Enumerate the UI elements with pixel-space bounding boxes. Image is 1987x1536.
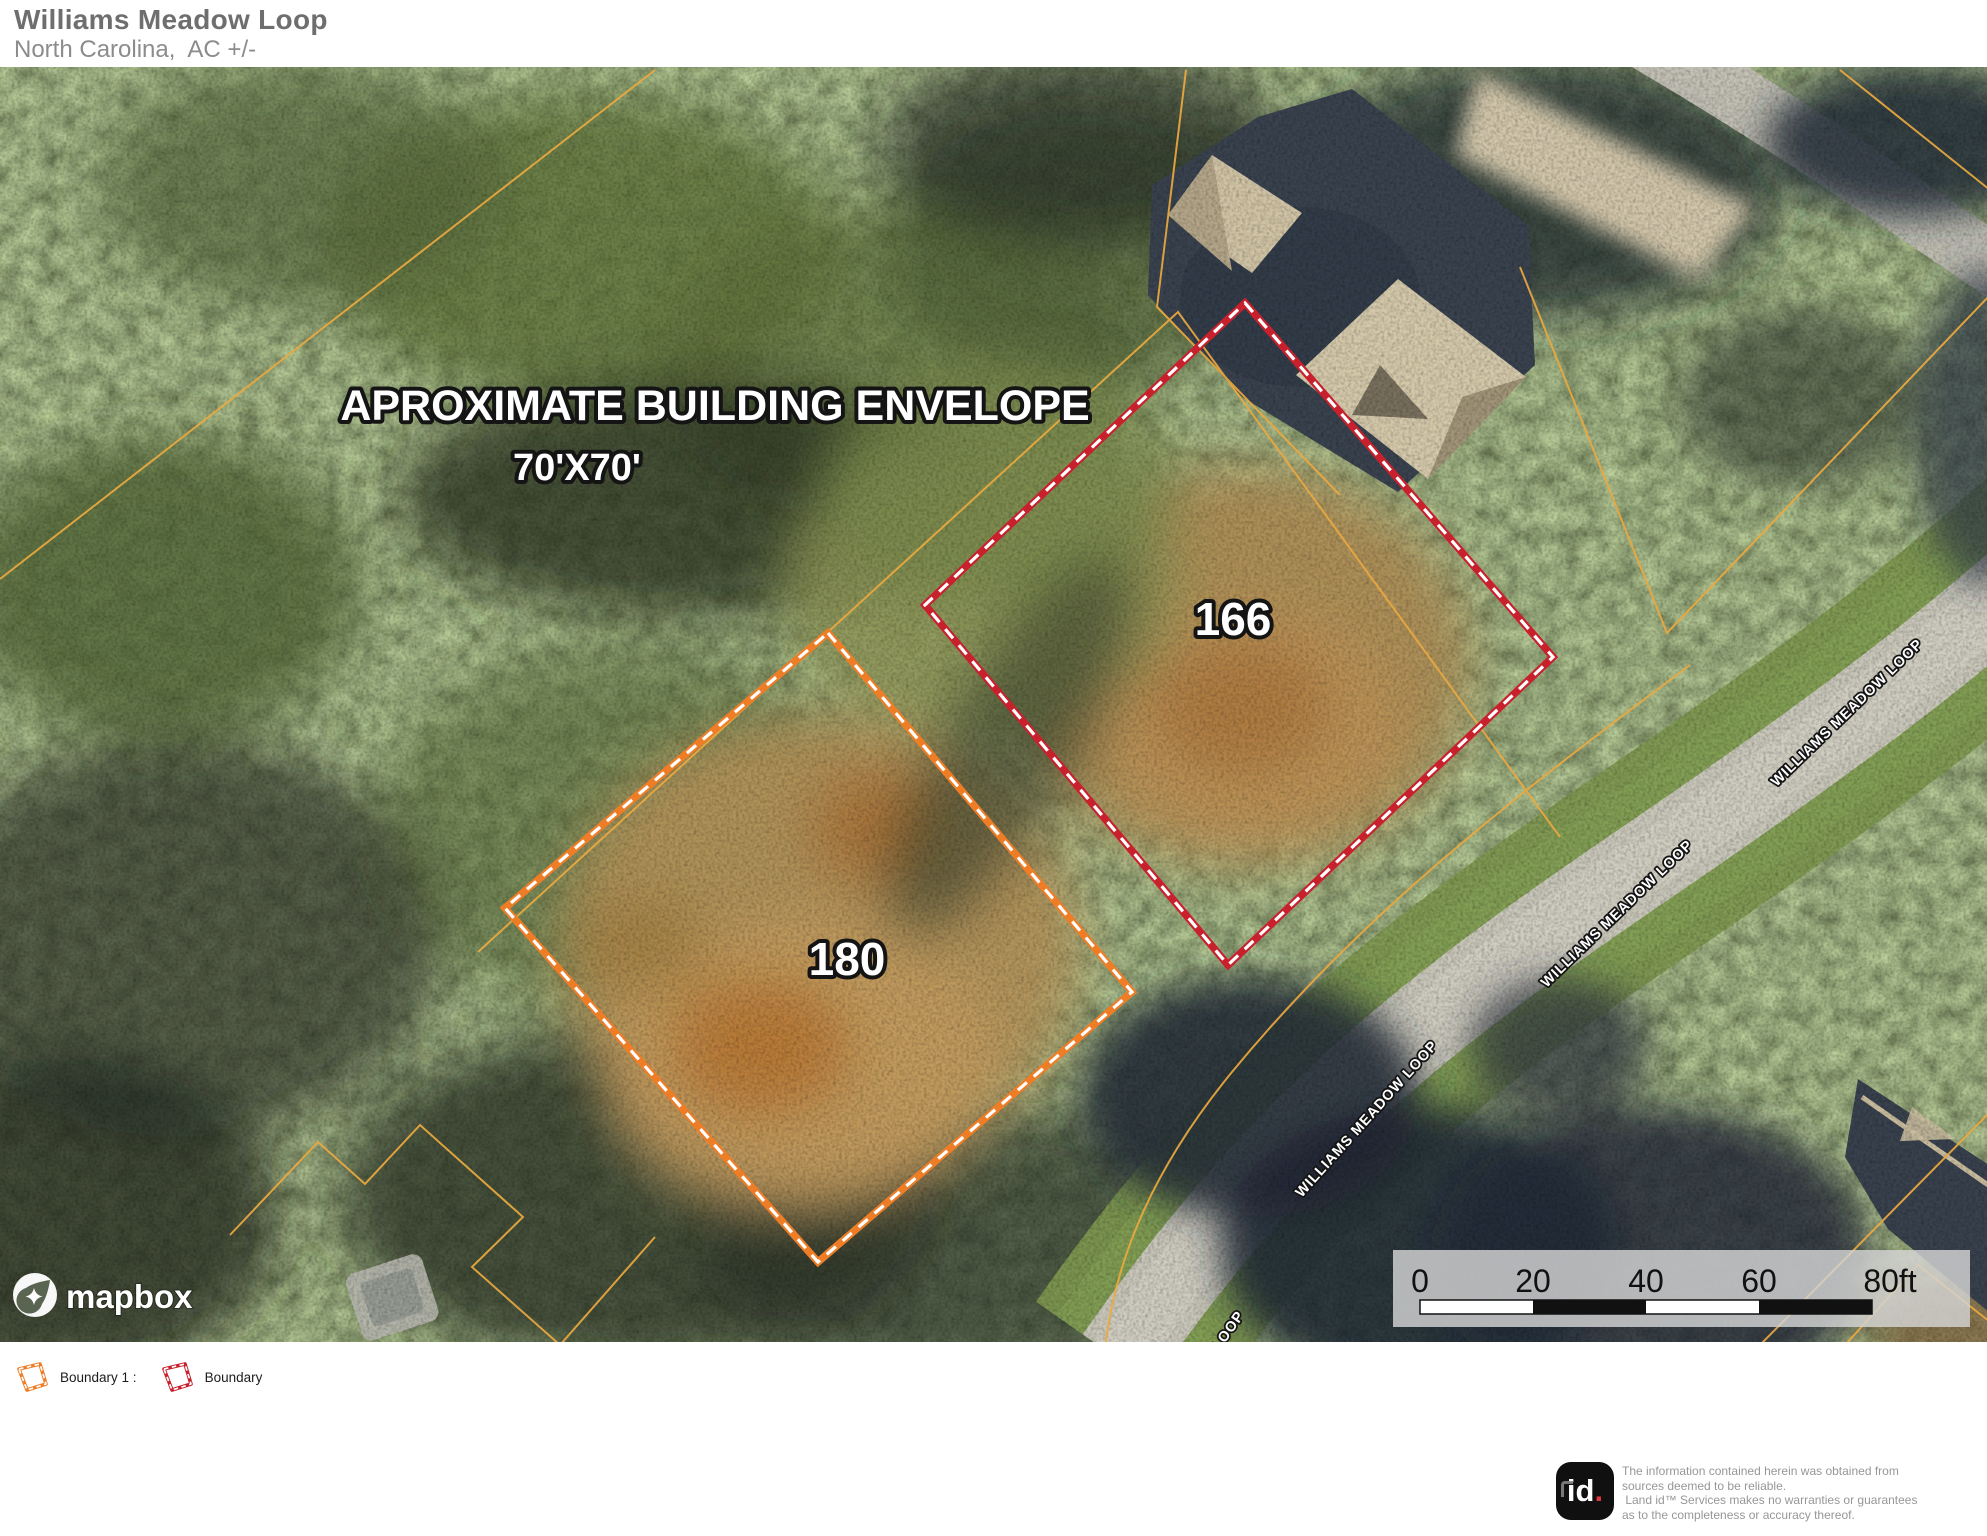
- legend-label-boundary1: Boundary 1 :: [60, 1370, 137, 1385]
- disclaimer-line: The information contained herein was obt…: [1622, 1464, 1917, 1479]
- mapbox-logo[interactable]: mapbox: [13, 1273, 193, 1317]
- legend-label-boundary: Boundary: [205, 1370, 263, 1385]
- scale-tick-0: 0: [1411, 1263, 1429, 1299]
- scale-tick-80ft: 80ft: [1863, 1263, 1916, 1299]
- page-header: Williams Meadow Loop North Carolina, AC …: [0, 0, 1987, 67]
- disclaimer-text: The information contained herein was obt…: [1622, 1462, 1917, 1522]
- map-canvas: APROXIMATE BUILDING ENVELOPE 70'X70' 166…: [0, 67, 1987, 1342]
- legend-item-boundary1: Boundary 1 :: [14, 1361, 137, 1393]
- lot-label-180: 180: [809, 933, 886, 985]
- page-subtitle: North Carolina, AC +/-: [14, 36, 256, 64]
- legend: Boundary 1 : Boundary: [0, 1342, 1987, 1412]
- mapbox-wordmark: mapbox: [66, 1278, 193, 1315]
- building-envelope-label: APROXIMATE BUILDING ENVELOPE: [340, 382, 1089, 430]
- envelope-size-label: 70'X70': [513, 447, 641, 489]
- footer: id. The information contained herein was…: [1556, 1462, 1917, 1522]
- scale-tick-20: 20: [1515, 1263, 1551, 1299]
- land-id-logo-dot: .: [1594, 1473, 1603, 1509]
- legend-item-boundary: Boundary: [159, 1361, 263, 1393]
- disclaimer-line: Land id™ Services makes no warranties or…: [1622, 1493, 1917, 1508]
- grain-overlay: [0, 67, 1987, 1342]
- satellite-map: APROXIMATE BUILDING ENVELOPE 70'X70' 166…: [0, 67, 1987, 1342]
- land-id-logo: id.: [1556, 1462, 1614, 1520]
- disclaimer-line: as to the completeness or accuracy there…: [1622, 1508, 1917, 1523]
- land-id-graymark-icon: [1561, 1481, 1573, 1497]
- lot-label-166: 166: [1195, 593, 1272, 645]
- scale-tick-40: 40: [1628, 1263, 1664, 1299]
- scale-tick-60: 60: [1741, 1263, 1777, 1299]
- scale-bar: 0 20 40 60 80ft: [1393, 1250, 1970, 1327]
- scale-bar-segment: [1759, 1300, 1872, 1314]
- boundary1-legend-icon: [14, 1361, 50, 1393]
- boundary-legend-icon: [159, 1361, 195, 1393]
- scale-bar-segment: [1533, 1300, 1646, 1314]
- page-title: Williams Meadow Loop: [14, 4, 328, 36]
- disclaimer-line: sources deemed to be reliable.: [1622, 1479, 1917, 1494]
